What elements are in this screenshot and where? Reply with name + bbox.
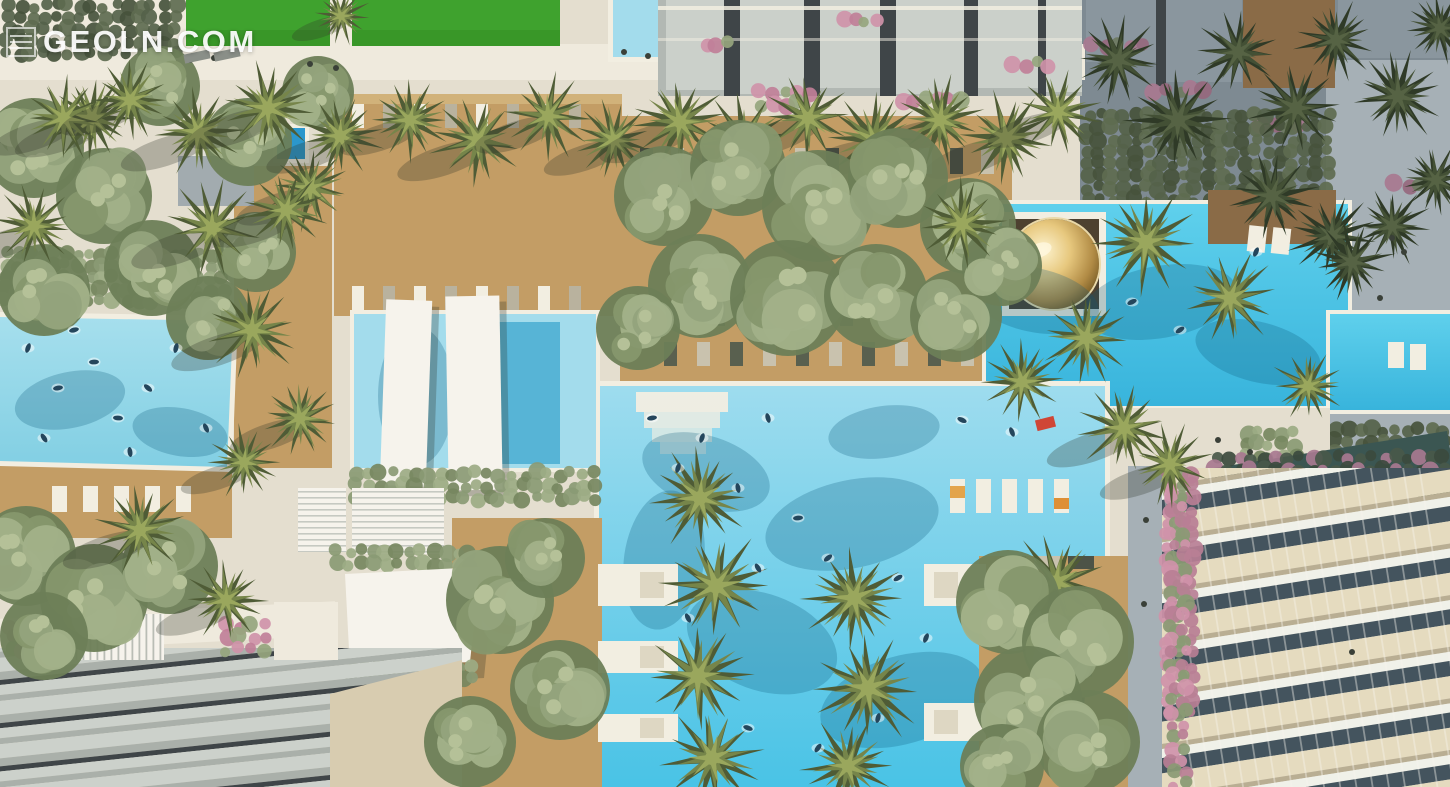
- tower-slab: [978, 0, 1038, 88]
- lawn-shade-right: [352, 30, 560, 46]
- notch-lounger: [1271, 227, 1292, 255]
- daybed-pier: [598, 714, 678, 742]
- tower-gap: [1038, 0, 1046, 96]
- daybed-pier: [598, 641, 678, 673]
- shade-canopy: [380, 299, 432, 486]
- tower-beam: [658, 6, 1082, 10]
- top-pool-water: [613, 0, 659, 57]
- walk-lounger: [1410, 344, 1426, 370]
- tower-gap: [880, 0, 896, 96]
- tower-gap: [964, 0, 978, 96]
- geoln-logo-icon: [6, 27, 36, 57]
- tower-slab: [1046, 0, 1082, 92]
- watermark: GEOLN.COM: [6, 24, 257, 60]
- resort-scene-canvas: [0, 0, 1450, 787]
- daybed-pier: [598, 564, 678, 606]
- shade-canopy: [445, 296, 502, 491]
- pier-daybed: [640, 572, 664, 598]
- tower-slab: [740, 0, 804, 94]
- pier-daybed: [640, 718, 664, 738]
- watermark-text: GEOLN.COM: [43, 24, 257, 60]
- pool-steps: [636, 392, 728, 412]
- tower-slab: [896, 0, 964, 94]
- pier-daybed: [934, 572, 958, 598]
- pool-towel-orange: [1054, 498, 1069, 509]
- deck-strip-light: [334, 94, 622, 104]
- tower-gap: [724, 0, 740, 96]
- aerial-resort-render: GEOLN.COM: [0, 0, 1450, 787]
- pier-daybed: [934, 710, 958, 734]
- tower-gap-shaded: [1156, 0, 1166, 86]
- tower-gap: [804, 0, 820, 96]
- tower-slab-shaded: [1164, 0, 1242, 82]
- wall-white-west: [274, 602, 338, 660]
- pool-towel-orange: [950, 486, 965, 498]
- walk-lounger: [1388, 342, 1404, 368]
